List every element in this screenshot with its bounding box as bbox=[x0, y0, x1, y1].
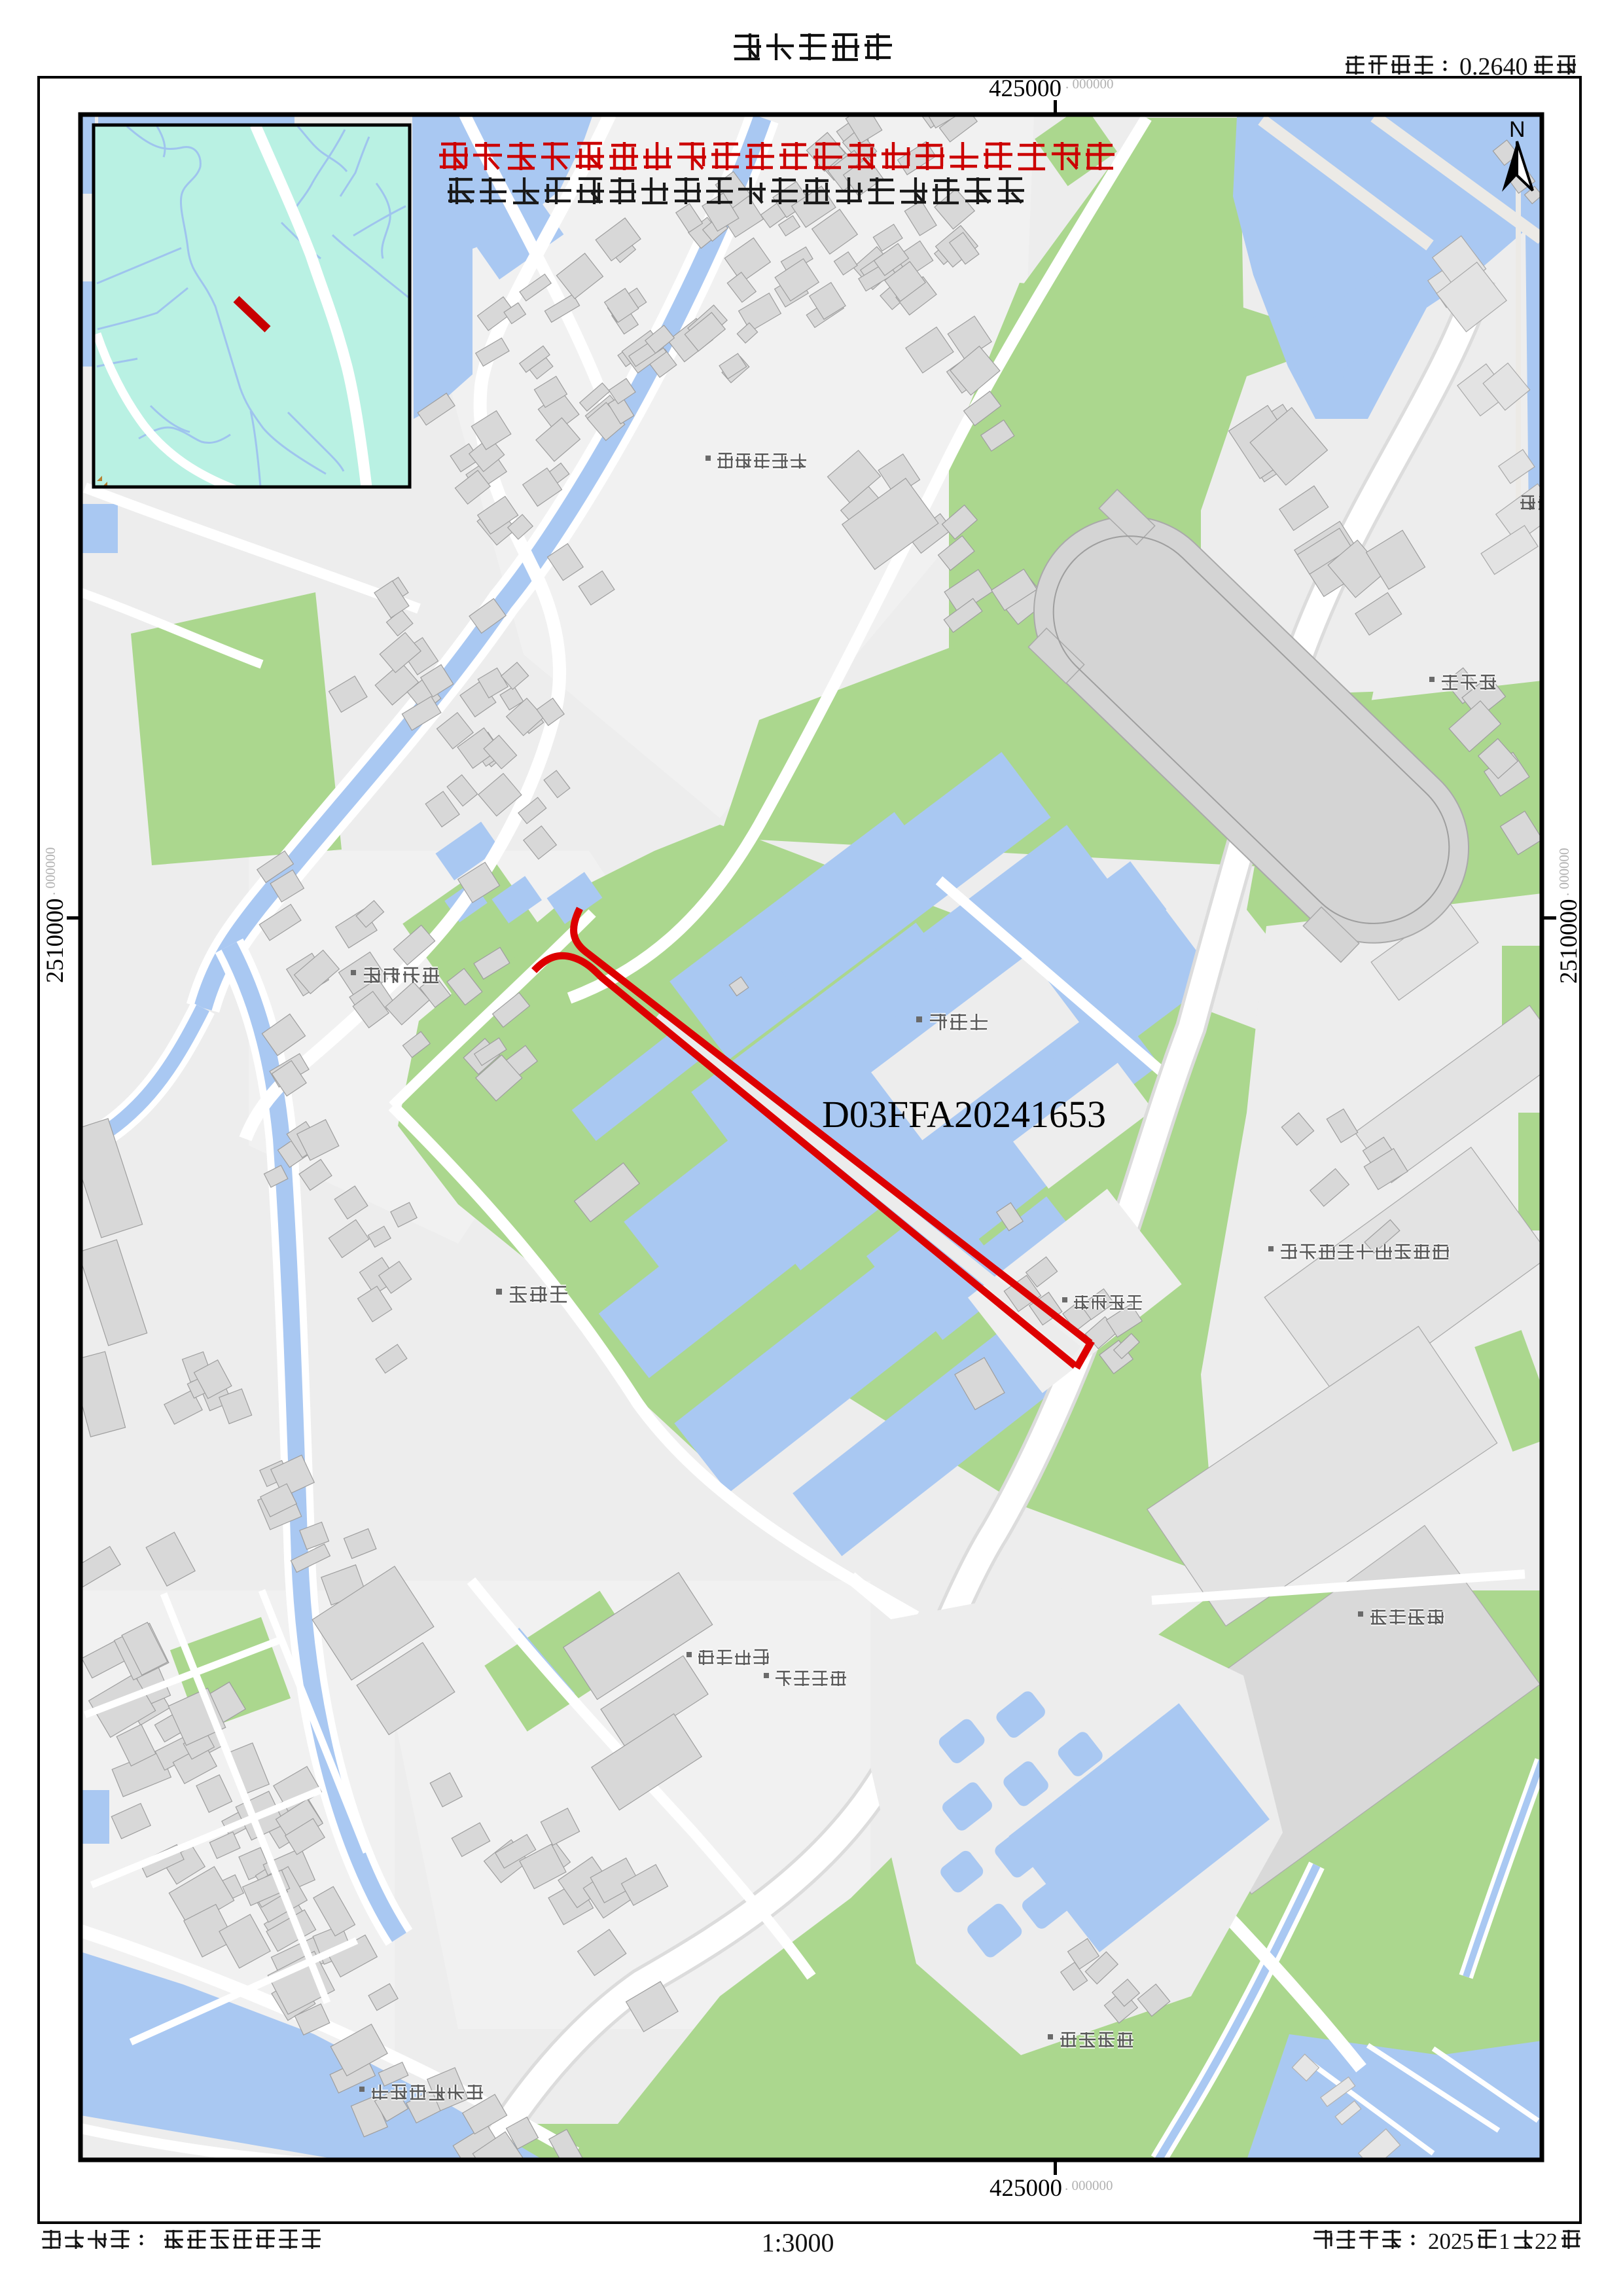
svg-text:1: 1 bbox=[1499, 2229, 1510, 2254]
svg-text:425000: 425000 bbox=[990, 2175, 1062, 2202]
svg-text:2025: 2025 bbox=[1428, 2229, 1474, 2254]
svg-text:N: N bbox=[1509, 117, 1525, 142]
svg-text:D03FFA20241653: D03FFA20241653 bbox=[822, 1093, 1106, 1136]
svg-text:425000: 425000 bbox=[989, 75, 1061, 102]
svg-text:2510000: 2510000 bbox=[42, 899, 69, 984]
svg-text:2510000: 2510000 bbox=[1556, 899, 1582, 984]
svg-text:. 000000: . 000000 bbox=[1556, 848, 1572, 897]
svg-text:. 000000: . 000000 bbox=[1065, 2178, 1113, 2193]
svg-text:1:3000: 1:3000 bbox=[761, 2228, 834, 2257]
svg-text:. 000000: . 000000 bbox=[43, 848, 58, 896]
svg-text:. 000000: . 000000 bbox=[1065, 76, 1114, 92]
svg-text:22: 22 bbox=[1535, 2229, 1558, 2254]
